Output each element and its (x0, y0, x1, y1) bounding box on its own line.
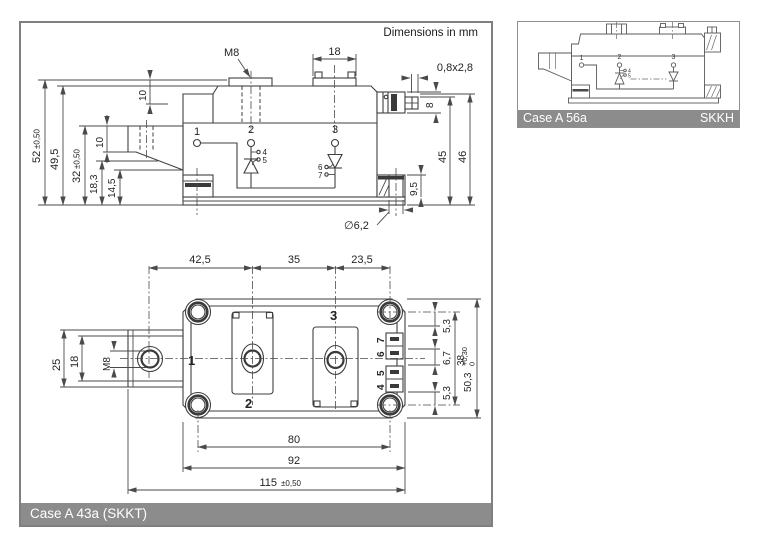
pin-7-label: 7 (318, 171, 323, 180)
dim-49-5: 49,5 (49, 149, 61, 170)
dim-45: 45 (437, 151, 449, 163)
plan-m8-label: M8 (102, 357, 113, 371)
dimensions-note: Dimensions in mm (383, 27, 478, 39)
terminal-3-label: 3 (332, 124, 338, 136)
terminal-2-label: 2 (248, 124, 254, 136)
inset-drawing: 1 2 3 4 5 (518, 22, 739, 110)
plan-view: 1 2 3 7 6 5 4 42,5 35 23,5 25 18 (51, 254, 481, 494)
dim-115-tol: ±0,50 (281, 479, 302, 488)
plan-terminal-2-label: 2 (245, 396, 252, 411)
dim-52-tol: ±0,50 (33, 128, 42, 149)
inset-series-label: SKKH (700, 110, 734, 127)
plan-terminal-1-label: 1 (188, 353, 195, 368)
side-view: 1 2 3 4 5 6 7 52 ±0,50 49, (31, 46, 475, 232)
terminal-1-node (194, 140, 201, 147)
dim-35: 35 (288, 254, 300, 266)
mounting-hole-top-left (186, 300, 211, 325)
inset-terminal-3-label: 3 (672, 54, 676, 61)
dim-dia-6-2: ∅6,2 (344, 220, 369, 232)
terminal-3-node (332, 140, 339, 147)
dim-92: 92 (288, 455, 300, 467)
dim-80: 80 (288, 434, 300, 446)
plan-pin-6-label: 6 (376, 351, 387, 357)
dim-9-5: 9,5 (409, 182, 420, 196)
inset-terminal-1-label: 1 (580, 55, 584, 62)
dim-10-top: 10 (138, 89, 149, 101)
dim-8: 8 (425, 102, 436, 108)
plan-pin-5-label: 5 (376, 370, 387, 376)
inset-pin-5-label: 5 (628, 74, 631, 80)
dim-5-3-bottom: 5,3 (442, 386, 453, 400)
dim-46: 46 (457, 151, 469, 163)
m8-label: M8 (224, 47, 239, 59)
plan-terminal-3-label: 3 (330, 308, 337, 323)
dim-18-3: 18,3 (89, 174, 100, 194)
flag-terminal (128, 126, 183, 170)
dim-23-5: 23,5 (351, 254, 372, 266)
dim-32: 32 (71, 171, 83, 183)
right-mounting-foot (377, 168, 405, 216)
dim-42-5: 42,5 (189, 254, 210, 266)
dim-25: 25 (51, 359, 63, 371)
dim-52: 52 (31, 151, 43, 163)
dim-5-3-top: 5,3 (442, 319, 453, 333)
plan-pin-7-label: 7 (376, 337, 387, 343)
inset-case-label: Case A 56a (523, 110, 587, 127)
dim-18-top: 18 (328, 46, 340, 58)
faston-dim-label: 0,8x2,8 (437, 62, 473, 74)
pin-5-label: 5 (263, 156, 268, 165)
terminal-2-node (248, 140, 255, 147)
dim-6-7: 6,7 (442, 351, 453, 365)
inset-title-bar: Case A 56a SKKH (518, 110, 739, 127)
dim-115: 115 (259, 477, 277, 489)
left-mounting-foot (183, 168, 213, 215)
inset-terminal-2-label: 2 (618, 54, 622, 61)
terminal-1-label: 1 (194, 126, 200, 138)
dim-50-3-tol-minus: 0 (468, 362, 477, 366)
dim-32-tol: ±0,50 (73, 148, 82, 169)
plan-pin-4-label: 4 (376, 384, 387, 390)
dim-18-plan: 18 (69, 356, 81, 368)
dim-14-5: 14,5 (107, 178, 118, 198)
m8-terminal (229, 78, 272, 86)
dim-50-3: 50,3 (463, 372, 474, 392)
inset-panel: 1 2 3 4 5 Case A 56a SKKH (517, 21, 740, 128)
faston-block (377, 92, 418, 113)
dim-10-mid: 10 (95, 136, 106, 148)
